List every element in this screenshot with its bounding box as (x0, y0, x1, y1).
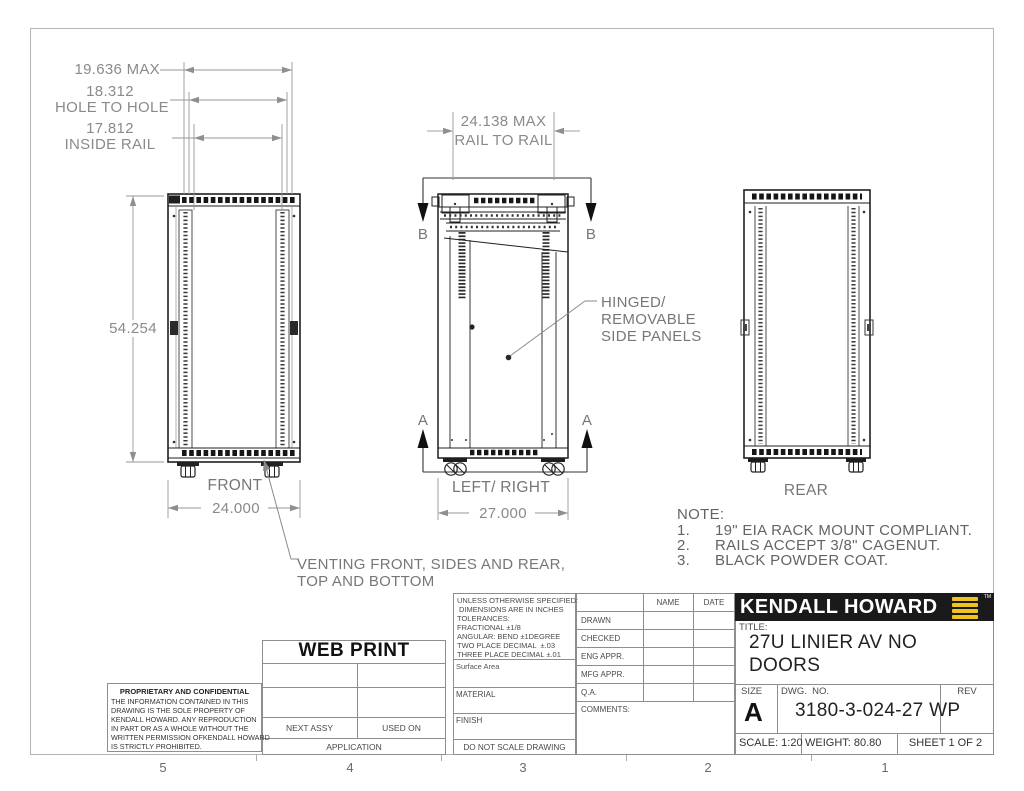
dwg-no-value: 3180-3-024-27 WP (795, 700, 960, 722)
scale-row-divider (735, 733, 994, 734)
dimension-lines (126, 62, 580, 520)
front-view-drawing (168, 194, 300, 477)
hinged-callout-line2: REMOVABLE (601, 311, 696, 328)
app-row-line (262, 717, 446, 718)
signoff-row-label: Q.A. (581, 688, 597, 697)
brand-bar: KENDALL HOWARD TM (735, 593, 994, 621)
section-a-label-left: A (415, 412, 431, 429)
brand-tm: TM (984, 595, 991, 600)
signoff-row-line (576, 701, 735, 702)
used-on-label: USED ON (357, 724, 446, 733)
tol-line (453, 713, 576, 714)
note-heading: NOTE: (677, 506, 724, 523)
zone-number: 2 (697, 760, 719, 775)
signoff-row-label: DRAWN (581, 616, 611, 625)
proprietary-heading: PROPRIETARY AND CONFIDENTIAL (107, 687, 262, 696)
zone-number: 3 (512, 760, 534, 775)
weight-value: WEIGHT: 80.80 (805, 739, 881, 748)
tol-line (453, 739, 576, 740)
dim-inside-rail-label: INSIDE RAIL (50, 136, 170, 153)
brand-name: KENDALL HOWARD (740, 596, 937, 619)
comments-label: COMMENTS: (581, 705, 630, 714)
zone-number: 5 (152, 760, 174, 775)
tolerance-text-line: DIMENSIONS ARE IN INCHES (459, 605, 564, 614)
tolerance-text-line: TWO PLACE DECIMAL ±.03 (457, 641, 555, 650)
title-label: TITLE: (739, 623, 768, 632)
do-not-scale-label: DO NOT SCALE DRAWING (453, 743, 576, 752)
next-assy-label: NEXT ASSY (262, 724, 357, 733)
drawing-title-line1: 27U LINIER AV NO (749, 632, 917, 654)
drawing-sheet: 19.636 MAX 18.312 HOLE TO HOLE 17.812 IN… (0, 0, 1024, 791)
dim-rail-to-rail-value: 24.138 MAX (446, 113, 561, 130)
drawing-title-line2: DOORS (749, 655, 820, 677)
surface-area-label: Surface Area (456, 662, 499, 671)
proprietary-line: IS STRICTLY PROHIBITED. (111, 742, 202, 751)
dim-height: 54.254 (100, 320, 166, 337)
size-label: SIZE (741, 687, 762, 696)
signoff-row-label: MFG APPR. (581, 670, 625, 679)
note-item-3-num: 3. (677, 552, 690, 569)
section-b-label-left: B (415, 226, 431, 243)
signoff-row-label: CHECKED (581, 634, 620, 643)
name-column-header: NAME (643, 598, 693, 607)
section-markers (418, 178, 597, 472)
signoff-row-label: ENG APPR. (581, 652, 624, 661)
dwg-no-label: DWG. NO. (781, 687, 829, 696)
dim-hole-to-hole-value: 18.312 (60, 83, 160, 100)
venting-callout-line2: TOP AND BOTTOM (297, 573, 435, 590)
zone-number: 1 (874, 760, 896, 775)
proprietary-line: IN PART OR AS A WHOLE WITHOUT THE (111, 724, 249, 733)
application-label: APPLICATION (262, 743, 446, 752)
sheet-value: SHEET 1 OF 2 (897, 739, 994, 748)
date-column-header: DATE (693, 598, 735, 607)
signoff-row-line (576, 683, 735, 684)
signoff-row-line (576, 611, 735, 612)
venting-callout-line1: VENTING FRONT, SIDES AND REAR, (297, 556, 565, 573)
app-row-line (262, 687, 446, 688)
tol-line (453, 659, 576, 660)
section-b-label-right: B (583, 226, 599, 243)
side-view-drawing (432, 194, 574, 475)
finish-label: FINISH (456, 716, 482, 725)
tolerance-text-line: UNLESS OTHERWISE SPECIFIED: (457, 596, 578, 605)
tolerance-text-line: TOLERANCES: (457, 614, 510, 623)
section-a-label-right: A (579, 412, 595, 429)
proprietary-line: THE INFORMATION CONTAINED IN THIS (111, 697, 248, 706)
material-label: MATERIAL (456, 690, 495, 699)
app-row-line (262, 738, 446, 739)
scale-value: SCALE: 1:20 (739, 739, 803, 748)
signoff-row-line (576, 647, 735, 648)
tolerance-text-line: THREE PLACE DECIMAL ±.01 (457, 650, 561, 659)
rear-view-label: REAR (774, 482, 838, 499)
proprietary-line: DRAWING IS THE SOLE PROPERTY OF (111, 706, 245, 715)
size-col-line (777, 684, 778, 733)
signoff-row-line (576, 629, 735, 630)
side-view-label: LEFT/ RIGHT (450, 479, 552, 496)
rear-view-drawing (741, 190, 873, 472)
dim-side-depth: 27.000 (471, 505, 535, 522)
front-view-label: FRONT (203, 477, 267, 494)
dim-front-max-width: 19.636 MAX (56, 61, 160, 78)
hinged-callout-line1: HINGED/ (601, 294, 666, 311)
dim-rail-to-rail-label: RAIL TO RAIL (446, 132, 561, 149)
signoff-row-line (576, 665, 735, 666)
web-print-label: WEB PRINT (262, 642, 446, 659)
tolerance-text-line: ANGULAR: BEND ±1DEGREE (457, 632, 560, 641)
proprietary-line: KENDALL HOWARD. ANY REPRODUCTION (111, 715, 257, 724)
note-item-3-text: BLACK POWDER COAT. (715, 552, 888, 569)
tol-line (453, 687, 576, 688)
hinged-callout-line3: SIDE PANELS (601, 328, 702, 345)
dim-hole-to-hole-label: HOLE TO HOLE (47, 99, 177, 116)
callout-leaders (263, 301, 597, 559)
tolerance-text-line: FRACTIONAL ±1/8 (457, 623, 521, 632)
title-divider (735, 684, 994, 685)
rev-label: REV (940, 687, 994, 696)
dim-front-width: 24.000 (204, 500, 268, 517)
proprietary-line: WRITTEN PERMISSION OFKENDALL HOWARD (111, 733, 270, 742)
size-value: A (744, 698, 763, 726)
dim-inside-rail-value: 17.812 (60, 120, 160, 137)
zone-number: 4 (339, 760, 361, 775)
